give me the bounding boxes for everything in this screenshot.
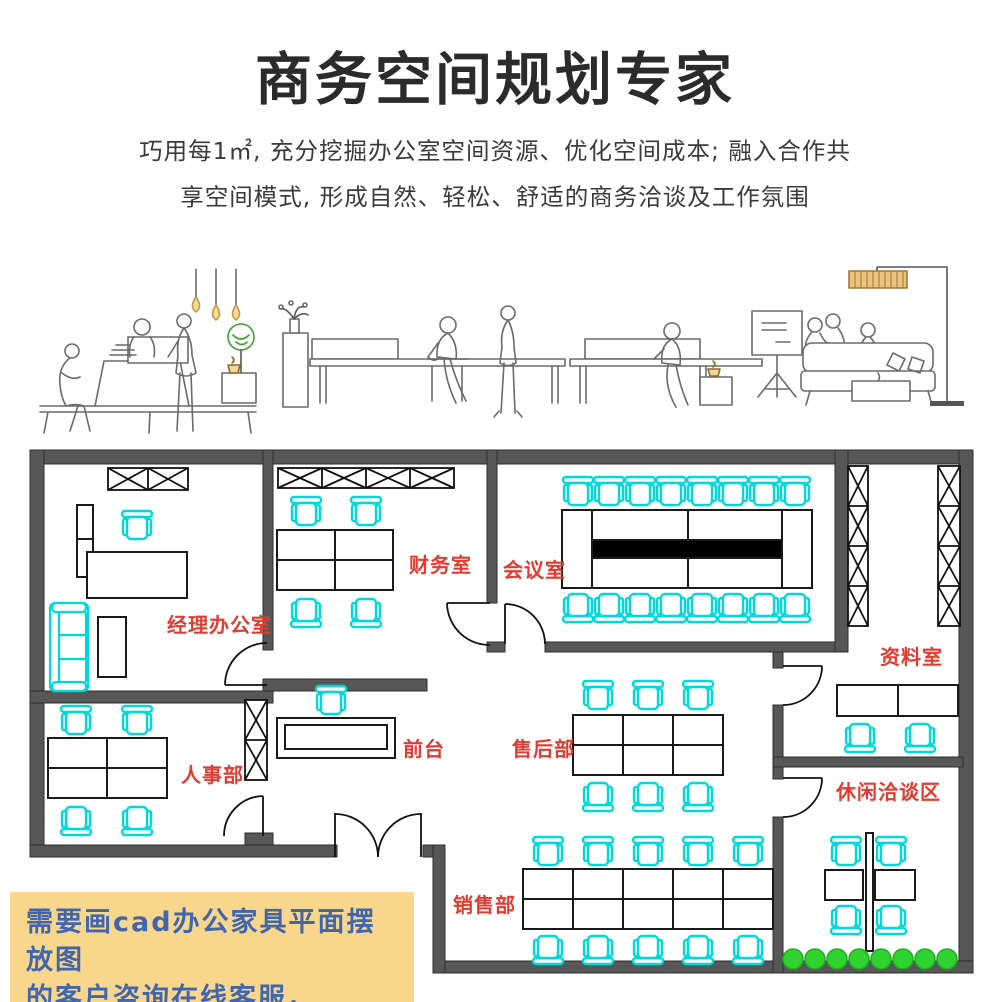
- subtitle-line-2: 享空间模式, 形成自然、轻松、舒适的商务洽谈及工作氛围: [0, 174, 990, 220]
- person-head: [65, 344, 79, 358]
- door-archive: [783, 666, 822, 705]
- wall-meeting-bottom-a: [487, 642, 505, 652]
- cabinet-archive-right: [938, 466, 960, 626]
- label-finance-room: 财务室: [409, 553, 472, 577]
- cabinet-manager-top: [108, 468, 188, 490]
- wall-step: [433, 845, 445, 973]
- wall-archive-leisure: [773, 757, 963, 767]
- wall-finance-right: [487, 450, 497, 603]
- cabinet-finance-top: [278, 468, 454, 488]
- sales-desks: [523, 869, 773, 929]
- door-meeting: [505, 604, 545, 644]
- pendant-lamp-icon: [193, 269, 240, 320]
- manager-side-table: [98, 617, 126, 677]
- flipchart-icon: [752, 311, 802, 397]
- wall-leisure-left: [773, 817, 783, 973]
- wall-top: [30, 450, 973, 464]
- page-title: 商务空间规划专家: [0, 34, 990, 116]
- cta-note-line-1: 需要画cad办公家具平面摆放图: [26, 904, 398, 980]
- subtitle: 巧用每1㎡, 充分挖掘办公室空间资源、优化空间成本; 融入合作共 享空间模式, …: [0, 128, 990, 220]
- after-sales-desks: [573, 715, 723, 775]
- cta-note: 需要画cad办公家具平面摆放图 的客户咨询在线客服，: [10, 892, 414, 1002]
- wall-hr-top: [30, 691, 273, 703]
- poster: 商务空间规划专家 巧用每1㎡, 充分挖掘办公室空间资源、优化空间成本; 融入合作…: [0, 0, 990, 1002]
- archive-desk: [837, 685, 958, 716]
- cabinet-archive-left: [848, 466, 868, 626]
- office-scene-illustration: [0, 245, 990, 440]
- lounge-scene: [40, 269, 256, 433]
- finance-desks: [277, 530, 393, 590]
- label-hr-department: 人事部: [181, 763, 244, 787]
- person-head: [826, 314, 840, 328]
- wall-meeting-bottom-b: [545, 642, 848, 652]
- door-manager: [225, 643, 267, 685]
- door-entrance-double: [335, 813, 421, 857]
- wall-hr-door-stub: [245, 833, 273, 845]
- manager-sofa: [50, 603, 88, 691]
- person-head: [664, 323, 680, 339]
- wall-archive-stub: [773, 652, 783, 668]
- sofa-scene: [752, 267, 964, 406]
- hr-desks: [48, 738, 167, 798]
- wall-meeting-right: [835, 450, 848, 652]
- wall-leisure-stub: [773, 767, 783, 779]
- wall-bottom-left: [30, 845, 337, 857]
- label-sales-department: 销售部: [453, 893, 516, 917]
- wall-right: [959, 450, 973, 973]
- person-head: [861, 323, 875, 337]
- subtitle-line-1: 巧用每1㎡, 充分挖掘办公室空间资源、优化空间成本; 融入合作共: [0, 128, 990, 174]
- label-archive-room: 资料室: [880, 645, 943, 669]
- label-leisure-area: 休闲洽谈区: [835, 780, 941, 804]
- person-head: [808, 318, 822, 332]
- label-front-desk: 前台: [403, 737, 445, 761]
- label-after-sales: 售后部: [512, 737, 575, 761]
- conference-table: [562, 510, 812, 588]
- wall-left: [30, 450, 44, 857]
- person-head: [501, 306, 515, 320]
- door-leisure: [783, 778, 822, 817]
- side-table: [222, 357, 256, 403]
- person-head: [177, 314, 191, 328]
- vase-icon: [290, 319, 299, 333]
- door-finance: [447, 603, 490, 645]
- wall-archive-left: [773, 705, 783, 757]
- person-head: [440, 317, 456, 333]
- label-meeting-room: 会议室: [503, 558, 566, 582]
- label-manager-office: 经理办公室: [167, 613, 272, 637]
- door-hr: [224, 796, 263, 836]
- cta-note-line-2: 的客户咨询在线客服，: [26, 980, 398, 1002]
- cabinet-hr-partition: [245, 700, 267, 780]
- coffee-table: [852, 381, 910, 401]
- person-head: [134, 319, 150, 335]
- leisure-screen: [866, 833, 873, 951]
- reception-scene: [279, 301, 762, 417]
- front-desk: [277, 718, 395, 758]
- coffee-table: [700, 377, 732, 405]
- conference-table-runner: [592, 540, 782, 558]
